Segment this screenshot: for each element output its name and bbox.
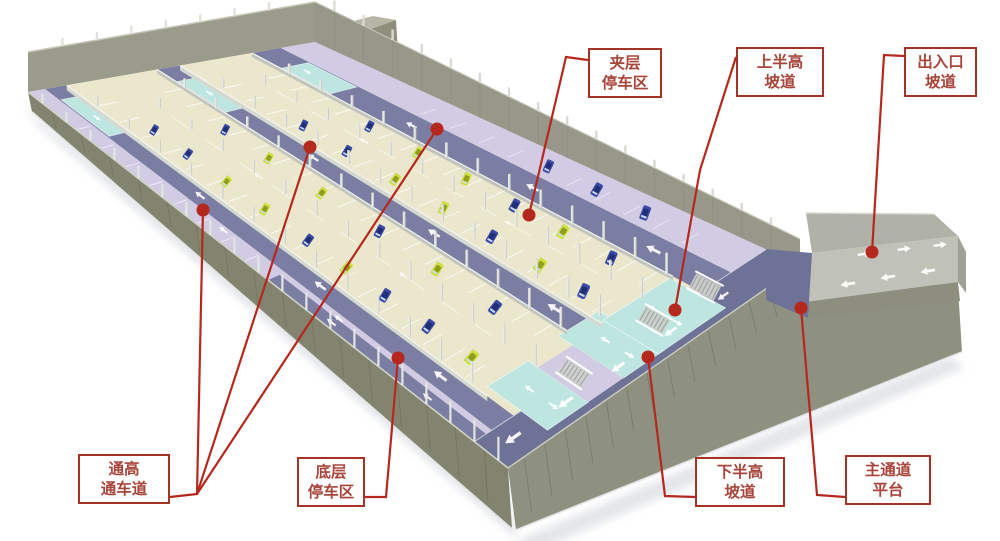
column-shade — [279, 135, 280, 148]
wall-post — [497, 437, 499, 461]
column-shade — [415, 127, 416, 141]
column-shade — [541, 190, 542, 208]
column-shade — [129, 118, 130, 129]
wall-post — [113, 148, 115, 160]
column-shade — [321, 79, 322, 90]
column-shade — [265, 74, 266, 84]
wall-post — [329, 310, 331, 328]
column-shade — [352, 95, 353, 107]
column-shade — [348, 221, 349, 237]
wall-post — [595, 131, 597, 140]
leader-dot-lower-half-ramp — [642, 351, 655, 364]
wall-post — [449, 401, 451, 423]
column-shade — [185, 78, 186, 88]
column-shade — [441, 339, 442, 360]
wall-post — [185, 202, 187, 216]
callout-main-aisle-platform: 主通道 平台 — [845, 455, 931, 505]
column-shade — [505, 323, 506, 344]
column-shade — [537, 258, 538, 278]
column-shade — [475, 222, 476, 240]
wall-post — [473, 419, 475, 442]
wall-post — [401, 365, 403, 386]
wall-post — [362, 15, 364, 26]
column-shade — [318, 132, 319, 145]
column-shade — [248, 116, 249, 128]
wall-post — [421, 44, 423, 54]
column-shade — [255, 96, 256, 107]
leader-dot-full-height-lane-3 — [431, 123, 444, 136]
wall-post — [268, 2, 270, 10]
wall-post — [161, 184, 163, 197]
wall-post — [377, 347, 379, 367]
wall-post — [566, 116, 568, 125]
wall-post — [712, 189, 714, 197]
wall-post — [450, 59, 452, 69]
callout-lower-half-height-ramp: 下半高 坡道 — [695, 457, 785, 507]
wall-post — [209, 220, 211, 235]
column-shade — [454, 176, 455, 192]
column-shade — [579, 243, 580, 263]
column-shade — [467, 250, 468, 269]
column-shade — [216, 97, 217, 108]
column-shade — [478, 158, 479, 174]
callout-text-line: 平台 — [849, 480, 927, 500]
wall-post — [137, 166, 139, 178]
callout-text-line: 下半高 — [699, 462, 781, 482]
column-shade — [636, 237, 637, 258]
column-shade — [447, 142, 448, 157]
column-shade — [317, 200, 318, 215]
callout-text-line: 底层 — [301, 462, 361, 482]
leader-dot-main-aisle-platform — [795, 302, 808, 315]
column-shade — [342, 174, 343, 189]
column-shade — [411, 262, 412, 280]
column-shade — [536, 344, 537, 366]
ramp-wall-cap — [806, 213, 934, 214]
callout-text-line: 通车道 — [82, 479, 166, 499]
column-shade — [223, 139, 224, 151]
leader-dot-entrance-exit-ramp — [866, 246, 879, 259]
column-shade — [611, 260, 612, 281]
column-shade — [561, 307, 562, 329]
column-shade — [573, 206, 574, 225]
wall-post — [305, 292, 307, 310]
column-shade — [286, 114, 287, 126]
wall-post — [624, 145, 626, 153]
wall-post — [41, 94, 43, 103]
wall-post — [508, 87, 510, 96]
callout-text-line: 出入口 — [908, 52, 973, 72]
callout-text-line: 坡道 — [699, 482, 781, 502]
column-shade — [223, 78, 224, 88]
column-shade — [222, 185, 223, 199]
column-shade — [316, 251, 317, 268]
wall-post — [130, 26, 132, 34]
column-shade — [472, 361, 473, 383]
callout-text-line: 上半高 — [740, 52, 820, 72]
column-shade — [379, 241, 380, 258]
column-shade — [548, 226, 549, 245]
column-shade — [442, 282, 443, 301]
wall-post — [391, 30, 393, 40]
column-shade — [422, 159, 423, 174]
column-shade — [410, 317, 411, 337]
leader-dot-full-height-lane-2 — [304, 141, 317, 154]
column-shade — [285, 180, 286, 194]
column-shade — [347, 273, 348, 291]
leader-dot-upper-half-ramp — [669, 304, 682, 317]
column-shade — [328, 108, 329, 120]
wall-post — [89, 130, 91, 141]
wall-post — [682, 174, 684, 182]
column-shade — [349, 150, 350, 164]
column-shade — [412, 186, 413, 202]
column-shade — [436, 231, 437, 249]
column-shade — [642, 277, 643, 299]
column-shade — [473, 303, 474, 323]
column-shade — [384, 111, 385, 124]
callout-full-height-traffic-lane: 通高 通车道 — [78, 454, 170, 504]
column-shade — [379, 295, 380, 314]
column-shade — [192, 118, 193, 129]
wall-post — [199, 14, 201, 22]
column-shade — [443, 204, 444, 221]
wall-post — [741, 203, 743, 211]
callout-upper-half-height-ramp: 上半高 坡道 — [736, 47, 824, 97]
diagram-canvas: 夹层 停车区 上半高 坡道 出入口 坡道 通高 通车道 底层 停车区 下半高 坡… — [0, 0, 1000, 541]
wall-post — [653, 160, 655, 168]
column-shade — [310, 155, 311, 169]
wall-post — [233, 238, 235, 253]
callout-entrance-exit-ramp: 出入口 坡道 — [904, 47, 977, 97]
wall-post — [425, 383, 427, 405]
column-shade — [380, 168, 381, 183]
wall-post — [353, 329, 355, 348]
callout-ground-floor-parking-area: 底层 停车区 — [297, 457, 365, 507]
column-shade — [604, 221, 605, 241]
leader-dot-ground-floor-parking — [392, 352, 405, 365]
wall-post — [257, 256, 259, 272]
column-shade — [285, 229, 286, 245]
column-shade — [600, 295, 601, 317]
column-shade — [499, 269, 500, 289]
callout-text-line: 坡道 — [740, 72, 820, 92]
column-shade — [160, 141, 161, 153]
column-shade — [530, 288, 531, 309]
column-shade — [297, 91, 298, 102]
wall-post — [165, 20, 167, 28]
callout-mezzanine-parking-area: 夹层 停车区 — [588, 48, 662, 98]
callout-text-line: 通高 — [82, 459, 166, 479]
callout-text-line: 停车区 — [301, 482, 361, 502]
wall-post — [65, 112, 67, 122]
column-shade — [160, 98, 161, 108]
callout-text-line: 主通道 — [849, 460, 927, 480]
column-shade — [667, 253, 668, 275]
column-shade — [97, 96, 98, 106]
column-shade — [510, 174, 511, 191]
column-shade — [517, 209, 518, 227]
column-shade — [391, 142, 392, 156]
entry-ramp-end — [958, 236, 966, 293]
leader-dot-full-height-lane-1 — [197, 204, 210, 217]
column-shade — [359, 125, 360, 138]
wall-post — [61, 38, 63, 46]
callout-text-line: 夹层 — [592, 53, 658, 73]
column-shade — [254, 207, 255, 222]
column-shade — [373, 193, 374, 209]
column-shade — [254, 159, 255, 172]
callout-text-line: 停车区 — [592, 73, 658, 93]
wall-post — [770, 218, 772, 225]
column-shade — [569, 277, 570, 298]
wall-post — [281, 274, 283, 291]
wall-post — [234, 8, 236, 16]
column-shade — [290, 64, 291, 74]
wall-post — [479, 73, 481, 83]
wall-post — [333, 1, 335, 12]
column-shade — [191, 163, 192, 176]
wall-post — [537, 102, 539, 111]
wall-post — [96, 32, 98, 40]
callout-text-line: 坡道 — [908, 72, 973, 92]
column-shade — [506, 240, 507, 259]
leader-dot-mezzanine-parking — [523, 209, 536, 222]
column-shade — [485, 192, 486, 209]
column-shade — [405, 212, 406, 229]
